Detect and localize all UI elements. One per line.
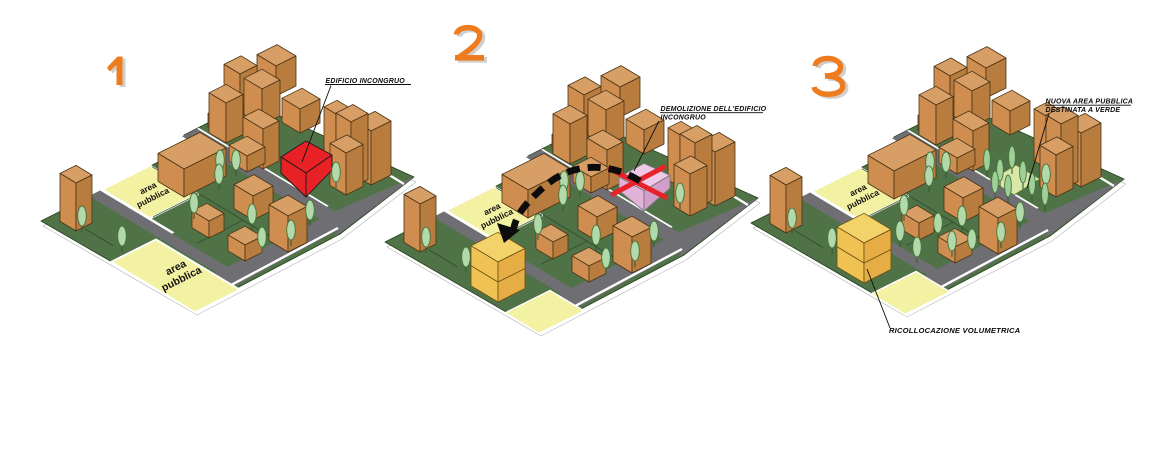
svg-text:RICOLLOCAZIONE VOLUMETRICA: RICOLLOCAZIONE VOLUMETRICA: [889, 326, 1020, 335]
svg-text:NUOVA AREA PUBBLICA: NUOVA AREA PUBBLICA: [1046, 99, 1134, 106]
svg-text:EDIFICIO INCONGRUO: EDIFICIO INCONGRUO: [326, 78, 406, 85]
svg-text:DEMOLIZIONE DELL'EDIFICIO: DEMOLIZIONE DELL'EDIFICIO: [661, 106, 767, 113]
svg-text:DESTINATA A VERDE: DESTINATA A VERDE: [1046, 107, 1121, 114]
svg-text:INCONGRUO: INCONGRUO: [661, 115, 707, 122]
